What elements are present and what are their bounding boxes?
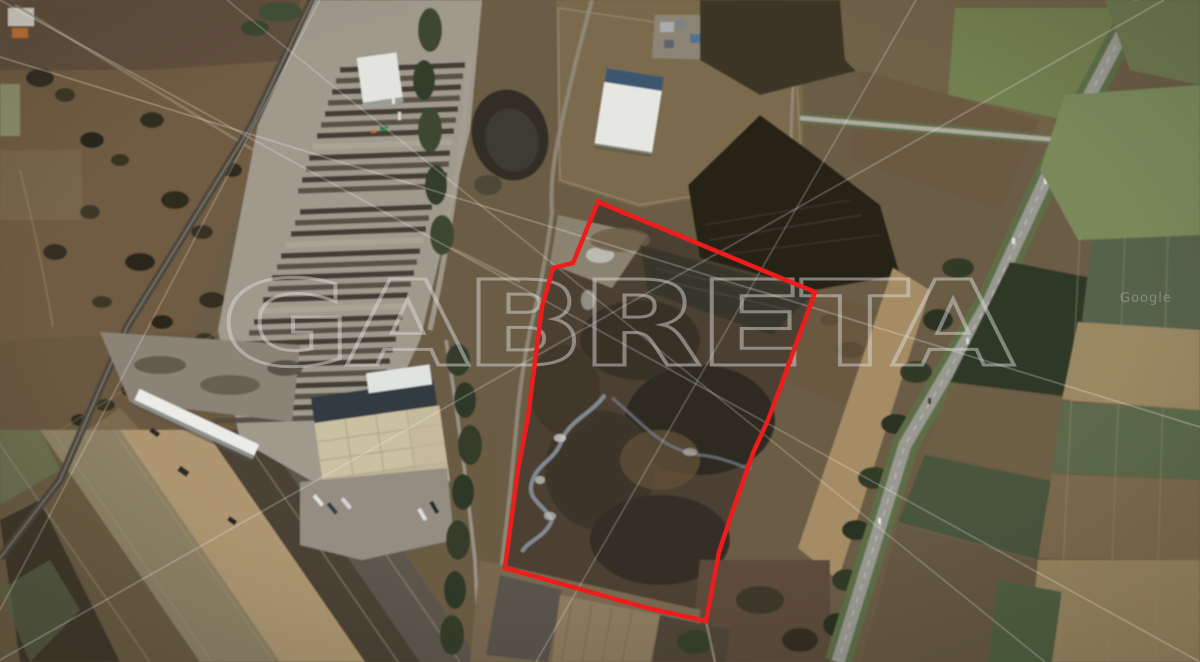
imagery-credit: Google bbox=[1120, 291, 1172, 306]
screenshot-root: GABRETA Google bbox=[0, 0, 1200, 662]
watermark-text: GABRETA bbox=[221, 256, 1014, 393]
satellite-image: GABRETA Google bbox=[0, 0, 1200, 662]
